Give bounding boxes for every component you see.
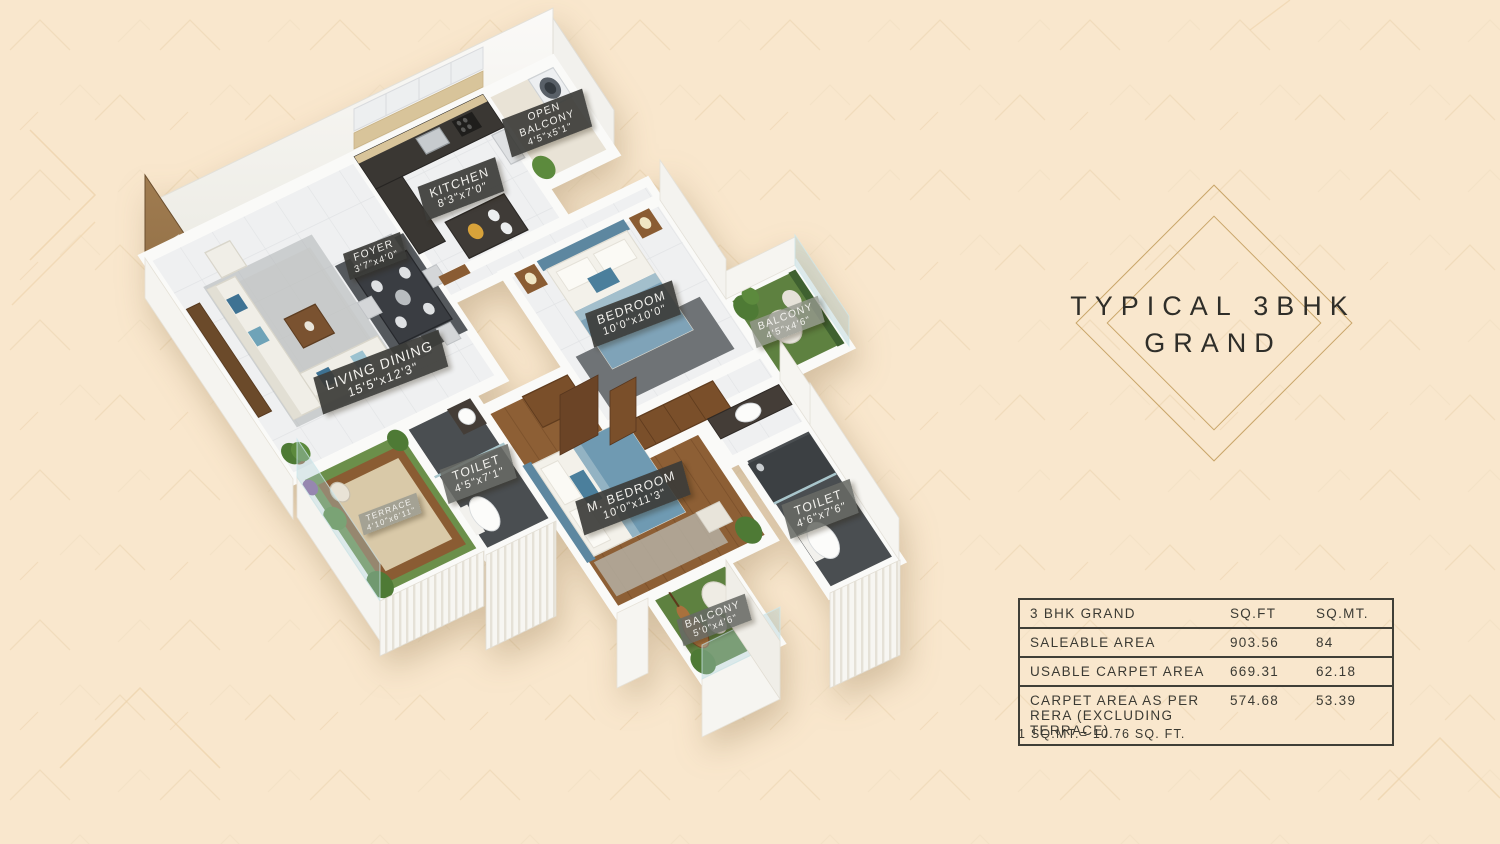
table-row: SALEABLE AREA 903.56 84 <box>1020 629 1392 658</box>
table-header-name: 3 BHK GRAND <box>1030 606 1230 621</box>
page-title-line2: GRAND <box>1013 325 1413 362</box>
row-name: SALEABLE AREA <box>1030 635 1230 650</box>
row-name: USABLE CARPET AREA <box>1030 664 1230 679</box>
row-sqft: 669.31 <box>1230 664 1316 679</box>
table-header-sqft: SQ.FT <box>1230 606 1316 621</box>
row-sqft: 903.56 <box>1230 635 1316 650</box>
table-header-sqmt: SQ.MT. <box>1316 606 1388 621</box>
area-table: 3 BHK GRAND SQ.FT SQ.MT. SALEABLE AREA 9… <box>1018 598 1394 746</box>
row-sqmt: 84 <box>1316 635 1388 650</box>
row-sqmt: 53.39 <box>1316 693 1388 708</box>
conversion-footnote: 1 SQ.MT.= 10.76 SQ. FT. <box>1018 727 1186 741</box>
table-row: USABLE CARPET AREA 669.31 62.18 <box>1020 658 1392 687</box>
page-title: TYPICAL 3BHK GRAND <box>1013 288 1413 362</box>
row-sqft: 574.68 <box>1230 693 1316 708</box>
row-sqmt: 62.18 <box>1316 664 1388 679</box>
brochure-page: { "page": { "background_color": "#f9e7cd… <box>0 0 1500 844</box>
page-title-line1: TYPICAL 3BHK <box>1013 288 1413 325</box>
area-table-header: 3 BHK GRAND SQ.FT SQ.MT. <box>1020 600 1392 629</box>
